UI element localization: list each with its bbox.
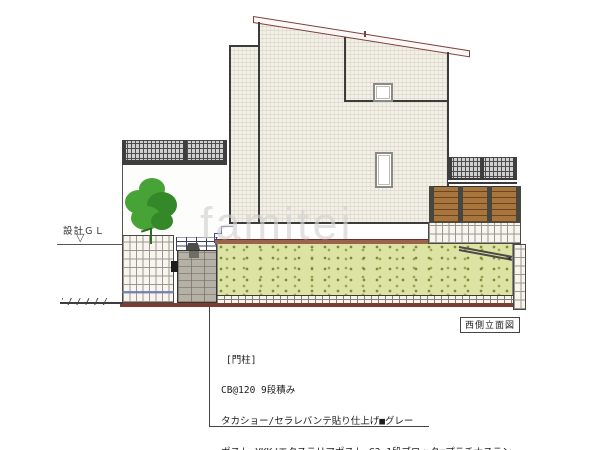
elevation-drawing-canvas: 設計ＧＬ ▽ famitei 西側立面図 [門柱] CB@120 9段積み タカ… <box>0 0 600 450</box>
annotation-line: CB@120 9段積み <box>221 386 521 396</box>
gate-post-annotation: [門柱] CB@120 9段積み タカショー/セラレバンテ貼り仕上げ■グレー ポ… <box>221 335 521 450</box>
right-end-pillar <box>513 244 526 310</box>
entry-step-outline <box>221 226 233 234</box>
window-upper <box>373 83 393 102</box>
house-floor-line <box>345 100 448 102</box>
right-mesh-fence-bottom-rail <box>448 178 517 184</box>
garden-tree <box>125 178 179 244</box>
house-wall-divider-mid <box>344 37 346 102</box>
wood-fence-post <box>487 186 492 222</box>
house-wall-divider-left <box>258 22 260 223</box>
view-title-box: 西側立面図 <box>460 317 520 333</box>
roof-joint-mark <box>364 31 366 37</box>
entry-step-outline <box>214 233 222 243</box>
gl-triangle-marker: ▽ <box>76 233 84 243</box>
annotation-line: [門柱] <box>221 356 521 366</box>
window-lower-glass <box>378 155 390 185</box>
ground-base-line <box>120 303 515 307</box>
gate-lamp <box>186 243 200 250</box>
house-left-edge <box>229 46 231 223</box>
window-lower <box>375 152 393 188</box>
gl-line <box>57 244 123 245</box>
annotation-border-vertical <box>209 306 210 427</box>
gate-postbox <box>171 261 178 272</box>
left-block-wall <box>122 235 174 303</box>
wood-fence-post <box>429 186 434 222</box>
wood-fence <box>429 186 521 222</box>
right-block-wall <box>428 222 521 244</box>
tree-foliage <box>151 212 173 230</box>
gate-lamp-base <box>189 251 199 258</box>
annotation-line: タカショー/セラレバンテ貼り仕上げ■グレー <box>221 417 521 427</box>
wood-fence-post <box>516 186 521 222</box>
ground-line-left <box>60 302 123 304</box>
house-base-line <box>229 222 448 224</box>
wood-fence-post <box>458 186 463 222</box>
handrail-end-knob <box>508 257 511 260</box>
window-upper-glass <box>376 86 390 99</box>
left-block-wall-blue-line <box>122 291 174 293</box>
tree-trunk <box>150 228 152 244</box>
house-step-top-edge <box>229 45 259 47</box>
